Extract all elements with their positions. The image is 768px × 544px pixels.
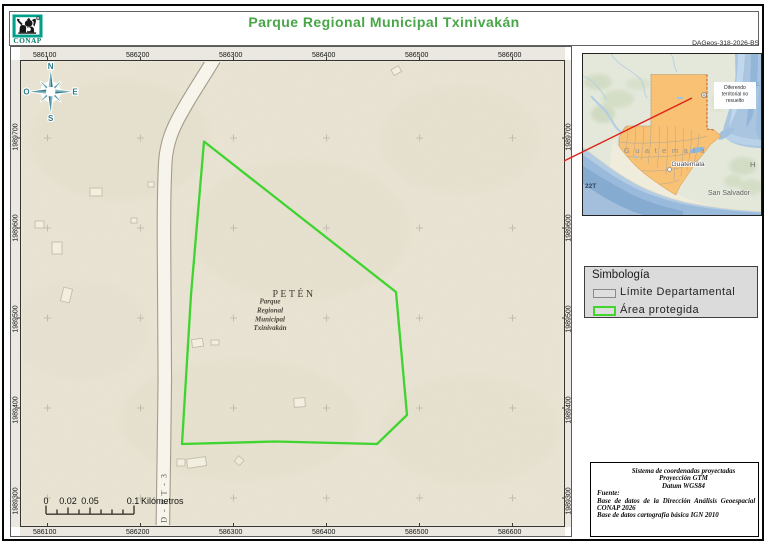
svg-text:CONAP: CONAP [13,36,41,45]
svg-text:Diferendo: Diferendo [724,85,746,91]
svg-text:22T: 22T [585,183,596,190]
svg-text:San Salvador: San Salvador [708,190,751,197]
svg-text:territorial no: territorial no [722,92,749,98]
svg-text:H o: H o [750,160,762,169]
svg-text:resuelto: resuelto [726,98,744,104]
